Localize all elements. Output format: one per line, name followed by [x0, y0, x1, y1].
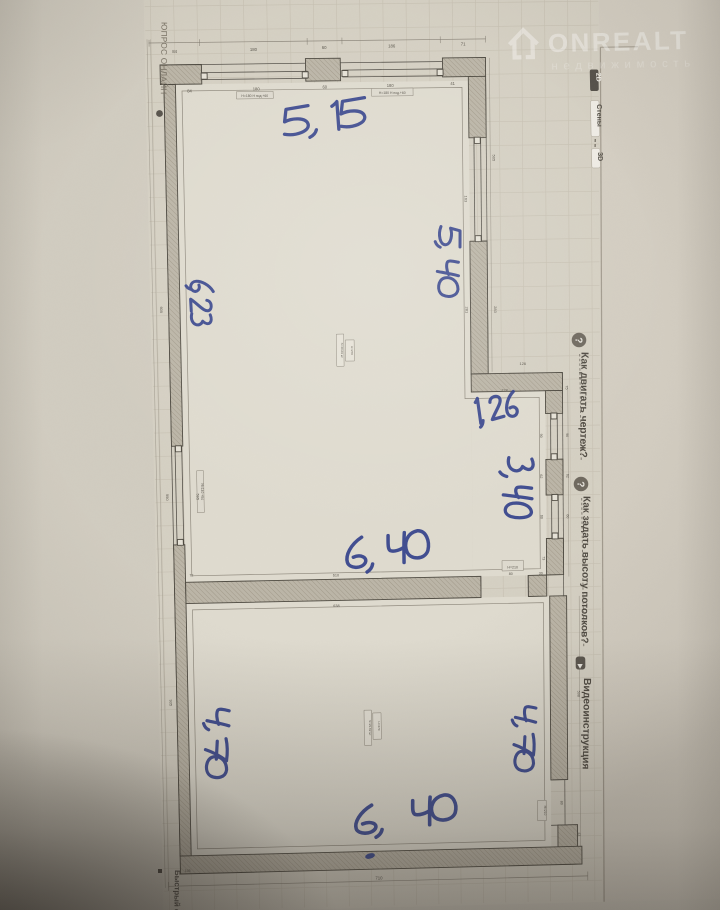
svg-text:80: 80	[560, 801, 564, 805]
svg-text:283: 283	[493, 306, 498, 313]
svg-text:638: 638	[333, 604, 339, 608]
svg-text:60: 60	[322, 45, 327, 50]
svg-text:60: 60	[323, 85, 328, 90]
svg-text:710: 710	[375, 876, 383, 881]
svg-text:186: 186	[388, 43, 396, 48]
svg-text:609: 609	[159, 306, 164, 313]
svg-text:990: 990	[165, 494, 170, 501]
svg-text:163: 163	[464, 196, 469, 203]
svg-text:105: 105	[185, 869, 191, 873]
svg-text:595: 595	[196, 493, 201, 500]
svg-text:H=210: H=210	[507, 565, 518, 569]
svg-text:60: 60	[566, 514, 570, 518]
svg-text:S=40.69 м²: S=40.69 м²	[340, 343, 344, 358]
svg-text:H=180 Н под.+60: H=180 Н под.+60	[379, 91, 406, 95]
svg-text:126: 126	[520, 361, 527, 366]
svg-text:?: ?	[574, 481, 585, 487]
svg-text:Как двигать чертеж?: Как двигать чертеж?	[577, 352, 589, 458]
svg-text:505: 505	[492, 155, 497, 162]
svg-text:180: 180	[387, 83, 395, 88]
svg-text:180: 180	[250, 47, 258, 52]
svg-text:75: 75	[564, 385, 569, 389]
svg-text:80: 80	[509, 572, 513, 576]
svg-text:30: 30	[539, 572, 543, 576]
svg-text:935: 935	[169, 699, 174, 706]
svg-text:ONREALT: ONREALT	[548, 25, 689, 58]
svg-text:41: 41	[450, 81, 455, 86]
svg-text:62: 62	[565, 474, 569, 478]
svg-text:73: 73	[542, 556, 546, 560]
svg-text:S=23.82 м²: S=23.82 м²	[368, 720, 372, 735]
svg-text:610: 610	[333, 573, 339, 577]
svg-text:60: 60	[539, 515, 543, 519]
svg-text:3D: 3D	[596, 152, 603, 161]
svg-text:Видеоинструкция: Видеоинструкция	[580, 678, 592, 769]
svg-text:Как задать высоту потолков?: Как задать высоту потолков?	[578, 496, 591, 644]
svg-text:?: ?	[572, 337, 583, 343]
svg-text:ЮПРОС ОНЛАЙН: ЮПРОС ОНЛАЙН	[159, 22, 171, 95]
svg-text:180: 180	[253, 87, 261, 92]
svg-text:2D: 2D	[594, 73, 601, 82]
svg-text:72: 72	[189, 573, 193, 577]
svg-text:128: 128	[501, 387, 508, 392]
svg-text:598: 598	[576, 691, 580, 697]
svg-text:H=180 Н под.+60: H=180 Н под.+60	[241, 94, 268, 98]
svg-text:Быстрый старт: Быстрый старт	[172, 870, 182, 910]
svg-text:62: 62	[539, 474, 543, 478]
svg-text:84: 84	[187, 88, 192, 93]
svg-text:Стены: Стены	[595, 104, 602, 127]
svg-text:90: 90	[565, 433, 569, 437]
svg-text:H=270: H=270	[350, 346, 354, 355]
svg-text:43: 43	[577, 832, 581, 836]
svg-text:281: 281	[465, 307, 470, 314]
svg-text:84: 84	[172, 49, 177, 54]
svg-text:H=210: H=210	[543, 806, 547, 816]
svg-text:H=270: H=270	[377, 722, 381, 731]
svg-text:71: 71	[461, 41, 466, 46]
svg-text:90: 90	[539, 434, 543, 438]
